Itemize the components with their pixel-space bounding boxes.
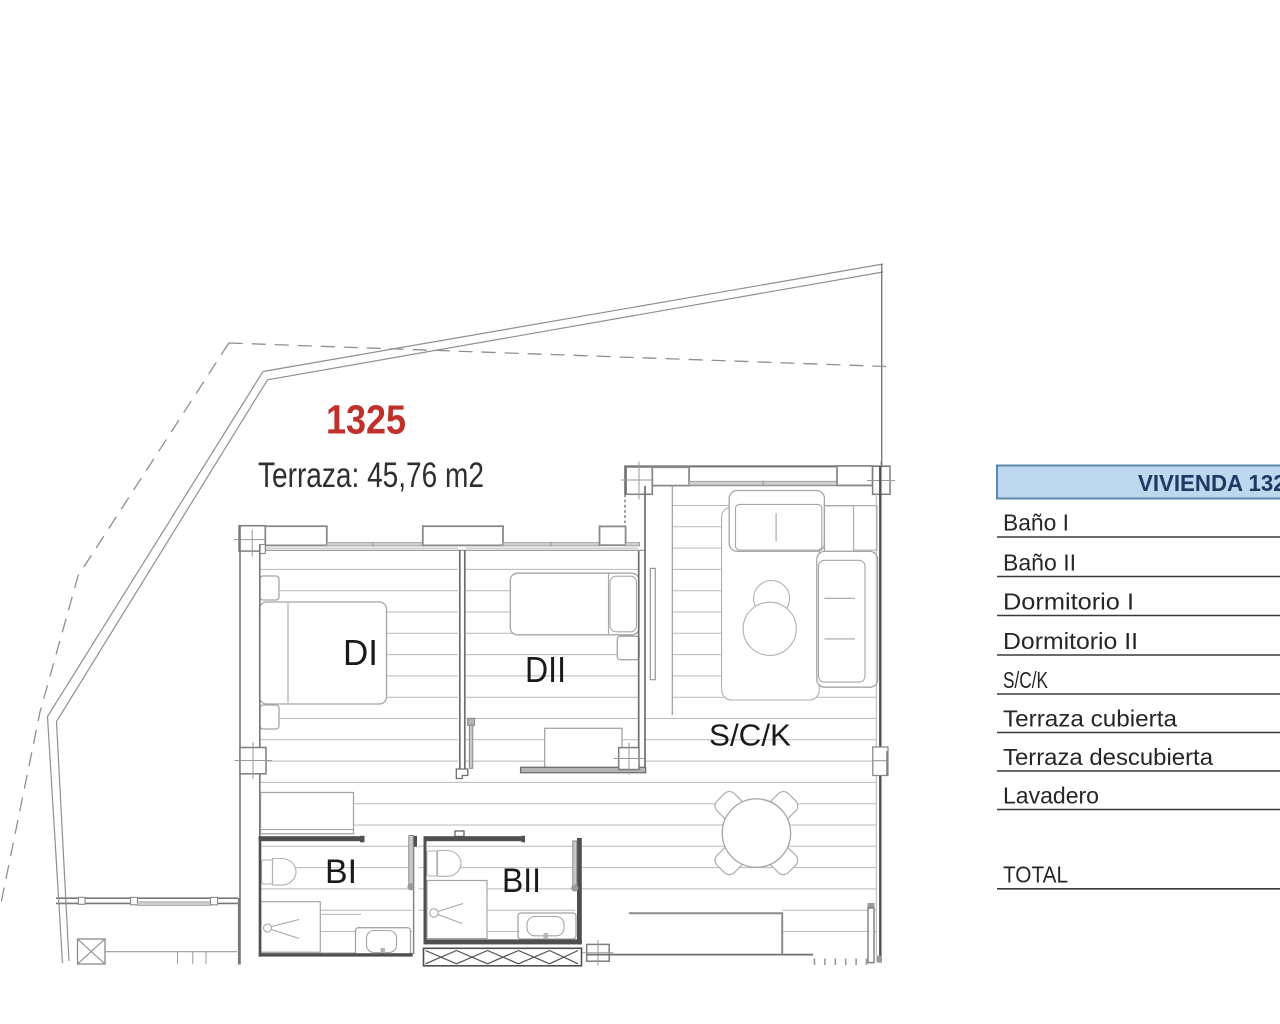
svg-text:Dormitorio I: Dormitorio I: [1003, 589, 1134, 615]
svg-text:DI: DI: [343, 632, 378, 673]
svg-text:1325: 1325: [326, 397, 406, 443]
svg-text:Lavadero: Lavadero: [1003, 783, 1099, 809]
svg-text:Terraza cubierta: Terraza cubierta: [1003, 706, 1177, 732]
svg-text:BI: BI: [325, 853, 357, 891]
svg-text:Baño II: Baño II: [1003, 550, 1076, 576]
svg-text:VIVIENDA 1325: VIVIENDA 1325: [1138, 470, 1280, 496]
svg-text:TOTAL: TOTAL: [1003, 862, 1068, 888]
svg-text:Dormitorio II: Dormitorio II: [1003, 628, 1138, 654]
svg-text:Baño I: Baño I: [1003, 510, 1069, 536]
svg-text:S/C/K: S/C/K: [1003, 667, 1048, 693]
svg-text:Terraza: 45,76 m2: Terraza: 45,76 m2: [258, 456, 484, 495]
svg-text:DII: DII: [525, 649, 566, 690]
svg-text:BII: BII: [502, 862, 541, 900]
svg-text:S/C/K: S/C/K: [709, 718, 791, 753]
svg-text:Terraza descubierta: Terraza descubierta: [1003, 744, 1213, 770]
